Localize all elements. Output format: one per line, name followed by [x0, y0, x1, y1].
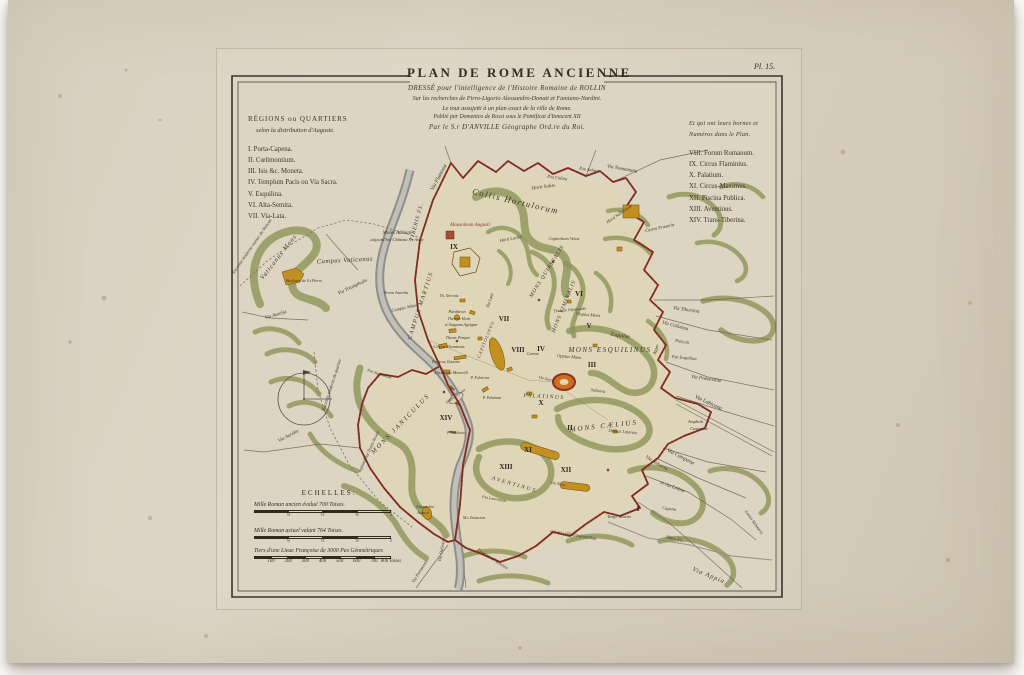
- legend-item: VIII. Forum Romanum.: [689, 148, 758, 159]
- map-label: XII: [561, 466, 572, 474]
- legend-item: IX. Circus Flaminius.: [689, 159, 758, 170]
- scale-bar-roman-mile-ancient: Mille Roman ancien évalué 700 Toises.¼½¾…: [254, 502, 414, 519]
- map-label: P. Fabricius: [470, 376, 490, 380]
- mausoleum-augusti-block: [446, 231, 454, 239]
- legend-item: III. Isis &c. Moneta.: [248, 166, 348, 177]
- legend-item: XIII. Aventinus.: [689, 204, 758, 215]
- legend-left-items: I. Porta-Capena.II. Cœlimontium.III. Isi…: [248, 144, 348, 223]
- map-label: I: [637, 505, 640, 513]
- map-label: Via Prænestina: [691, 375, 722, 384]
- legend-item: V. Esquilina.: [248, 189, 348, 200]
- legend-left-heading: RÉGIONS ou QUARTIERS: [248, 114, 348, 125]
- map-subtitle-2: Sur les recherches de Pirro-Ligorio Ales…: [297, 95, 717, 102]
- north-flag-icon: [303, 370, 311, 375]
- legend-item: VI. Alta-Semita.: [248, 200, 348, 211]
- map-author-line: Par le S.r D'ANVILLE Géographe Ord.re du…: [297, 123, 717, 131]
- scale-bar-label: Tiers d'une Lieue Françoise de 3000 Pas …: [254, 548, 414, 554]
- map-label: Th. Neronis: [440, 293, 459, 298]
- map-label: Theatr. Pompei: [446, 335, 470, 340]
- legend-item: II. Cœlimontium.: [248, 155, 348, 166]
- map-label: Naumachia: [415, 505, 434, 509]
- map-label: Via Nomentana: [606, 164, 638, 174]
- legend-right-subheading: Numéros dans le Plan.: [689, 129, 758, 140]
- map-sheet-paper: Via FlaminiaHorti Salus.P.ta ColinaP.ta …: [8, 0, 1014, 663]
- plate-number: Pl. 15.: [754, 62, 775, 71]
- scale-tick-label: ½: [321, 539, 325, 544]
- map-subtitle-4: Publié par Domenico de Rossi sous le Pon…: [297, 114, 717, 120]
- scale-bar-label: Mille Roman actuel valant 764 Toises.: [254, 528, 414, 534]
- scale-tick-label: 800 Toises: [381, 559, 401, 564]
- map-label: V: [586, 322, 591, 330]
- scales-heading: ECHELLES.: [289, 489, 369, 497]
- scale-bar-ticks: ¼½¾1: [254, 539, 414, 545]
- scale-tick-label: ¾: [355, 513, 359, 518]
- map-label: Castrense: [690, 426, 708, 431]
- scale-tick-label: 200: [285, 559, 292, 564]
- map-label: M.s Testaceus: [462, 515, 486, 520]
- scale-bar-ticks: 100200300400500600700800 Toises: [254, 559, 414, 565]
- map-label: Basilique de S.t Pierre: [286, 278, 322, 283]
- scale-bar-french-league: Tiers d'une Lieue Françoise de 3000 Pas …: [254, 548, 414, 565]
- map-label: III: [588, 361, 596, 369]
- scale-tick-label: ¾: [355, 539, 359, 544]
- map-label: Via Aurelia: [278, 429, 301, 444]
- map-label: Augusti: [416, 511, 429, 515]
- map-label: et via Latina: [659, 481, 685, 495]
- map-label: P.ta Salara: [578, 166, 600, 174]
- map-subtitle-1: DRESSÉ pour l'intelligence de l'Histoire…: [297, 84, 717, 92]
- map-label: et Stagnum Agrippæ: [445, 322, 478, 327]
- scale-bar-label: Mille Roman ancien évalué 700 Toises.: [254, 502, 414, 508]
- map-label: Campus Minor: [391, 302, 419, 313]
- map-label: Porticus Octaviæ: [431, 359, 460, 364]
- map-label: II: [567, 424, 573, 432]
- map-label: XIV: [440, 414, 453, 422]
- map-label: VI: [575, 290, 583, 298]
- map-label: P. Sublicius: [446, 431, 465, 435]
- scale-bar-ticks: ¼½¾1: [254, 513, 414, 519]
- legend-item: X. Palatium.: [689, 170, 758, 181]
- legend-item: XIV. Trans-Tiberina.: [689, 215, 758, 226]
- legend-item: VII. Via-Lata.: [248, 211, 348, 222]
- legend-item: XI. Circus-Maximus.: [689, 181, 758, 192]
- map-label: IX: [450, 243, 458, 251]
- map-label: Via Tiburtina: [673, 306, 700, 315]
- legend-item: IV. Templum Pacis ou Via Sacra.: [248, 177, 348, 188]
- scale-tick-label: 700: [370, 559, 377, 564]
- map-title: PLAN DE ROME ANCIENNE: [407, 65, 607, 81]
- map-label: VII: [499, 315, 510, 323]
- map-label: Pantheon: [447, 309, 466, 314]
- scale-tick-label: 100: [268, 559, 275, 564]
- map-label: XI: [524, 446, 532, 454]
- map-label: Via Campana: [666, 448, 696, 467]
- map-label: Porta Aurelia: [383, 290, 409, 295]
- scale-tick-label: ¼: [286, 513, 290, 518]
- legend-right-heading: Et qui ont leurs bornes et: [689, 118, 758, 129]
- map-label: Via Aurelia: [264, 310, 288, 321]
- scale-tick-label: ½: [321, 513, 325, 518]
- map-label: X: [538, 399, 543, 407]
- legend-regions-right: Et qui ont leurs bornes et Numéros dans …: [689, 118, 758, 227]
- legend-left-subheading: selon la distribution d'Auguste.: [256, 125, 348, 136]
- scale-tick-label: 600: [353, 559, 360, 564]
- map-label: Campus Vaticanus: [317, 256, 374, 266]
- map-label: Circus Flaminius: [433, 344, 464, 349]
- map-label: Moles Adriani: [382, 231, 412, 236]
- map-label: Capena: [662, 505, 677, 512]
- legend-right-items: VIII. Forum Romanum.IX. Circus Flaminius…: [689, 148, 758, 227]
- legend-item: XII. Piscina Publica.: [689, 193, 758, 204]
- map-label: Capitolium Vetus: [549, 236, 580, 241]
- map-label: P.ta Esquilina: [670, 354, 697, 361]
- map-label: Temp. Martis: [607, 514, 631, 519]
- castel-sant-angelo: [460, 257, 470, 267]
- map-label: VIII: [511, 346, 525, 354]
- scale-tick-label: 400: [319, 559, 326, 564]
- map-label: Mausoleum Augusti: [449, 223, 490, 228]
- scale-tick-label: 500: [336, 559, 343, 564]
- scale-tick-label: 1: [390, 513, 392, 518]
- map-label: Carinæ: [527, 351, 539, 356]
- scale-tick-label: 300: [302, 559, 309, 564]
- scale-tick-label: 1: [390, 539, 392, 544]
- legend-item: I. Porta-Capena.: [248, 144, 348, 155]
- scale-tick-label: ¼: [286, 539, 290, 544]
- map-label: Enceinte moderne du quartier: [321, 358, 343, 412]
- colosseum-arena: [560, 379, 569, 385]
- map-label: Thermæ Horti: [448, 316, 471, 321]
- map-label: Theatrum Marcelli: [434, 370, 469, 375]
- map-label: P. Palatinus: [482, 396, 502, 400]
- map-label: XIII: [499, 463, 513, 471]
- map-label: Puticoli: [674, 338, 691, 346]
- map-subtitle-3: Le tout assujetti à un plan exact de la …: [297, 105, 717, 112]
- legend-regions-left: RÉGIONS ou QUARTIERS selon la distributi…: [248, 114, 348, 223]
- map-label: Via Collatina: [662, 321, 690, 333]
- map-label: Amphith.: [687, 419, 704, 424]
- map-label: MONS ESQUILINUS: [568, 346, 652, 354]
- map-label: Via Triumphalis: [337, 278, 368, 296]
- scale-bar-roman-mile-modern: Mille Roman actuel valant 764 Toises.¼½¾…: [254, 528, 414, 545]
